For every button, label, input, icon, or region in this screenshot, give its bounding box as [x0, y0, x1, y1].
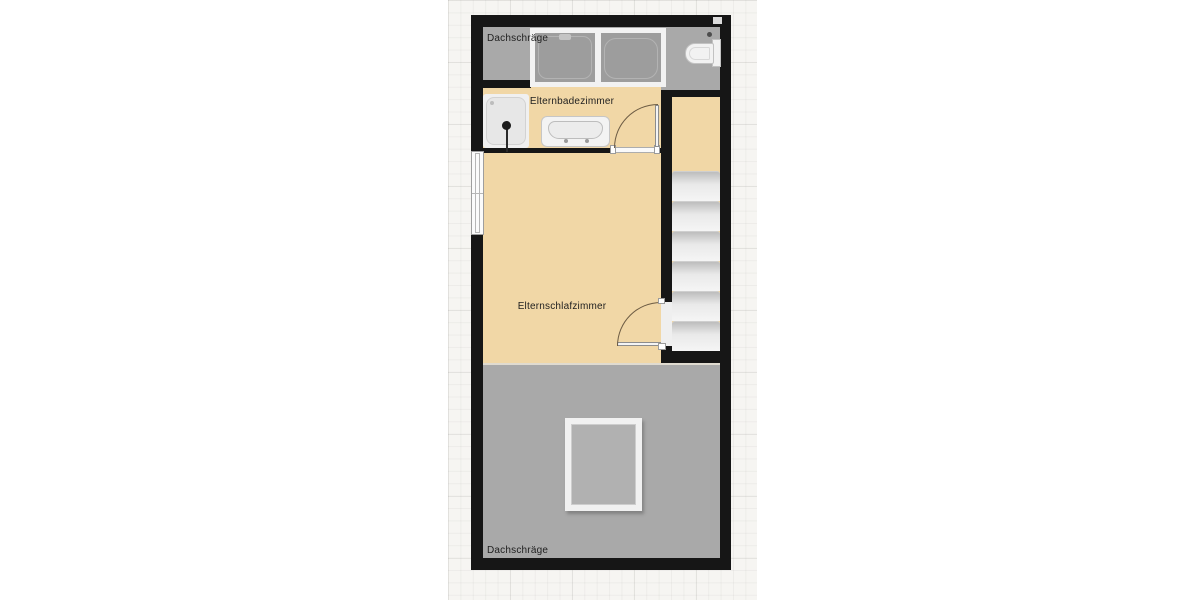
stair-tread [672, 261, 720, 291]
floor-plan: Dachschräge Elternbadezimmer Elternschla… [471, 15, 731, 570]
bathtub[interactable] [530, 28, 666, 87]
window-mullion [472, 193, 483, 194]
stair-tread [672, 201, 720, 231]
bathtub-basin-right [601, 33, 661, 82]
wall-stairwell-bottom [661, 351, 720, 363]
stair-tread [672, 171, 720, 201]
stair-tread [672, 321, 720, 351]
room-label-bedroom: Elternschlafzimmer [483, 301, 641, 313]
shower-head-icon [502, 121, 511, 130]
room-label-bathroom: Elternbadezimmer [483, 96, 661, 108]
wall-vent-icon [713, 17, 722, 24]
wall-bathroom-bedroom [483, 148, 610, 153]
roof-window-pane [571, 424, 636, 505]
wall-bathroom-top-left [471, 80, 531, 88]
wall-stairwell-top [661, 90, 720, 97]
toilet[interactable] [685, 43, 714, 64]
door-jamb [658, 298, 665, 304]
stair-tread [672, 231, 720, 261]
faucet-icon [559, 34, 571, 40]
bathtub-basin-outline [604, 38, 658, 79]
door-jamb [658, 343, 666, 350]
window[interactable] [471, 151, 484, 235]
stairs[interactable] [672, 97, 720, 351]
zone-label-bottom: Dachschräge [487, 545, 548, 557]
sink-tap-icon [585, 139, 589, 143]
sink-tap-icon [564, 139, 568, 143]
zone-label-top: Dachschräge [487, 33, 548, 45]
toilet-bowl-outline [689, 47, 710, 60]
stair-tread [672, 291, 720, 321]
wall-stairwell-side [661, 97, 672, 302]
sink-basin-outline [548, 121, 603, 139]
roof-window[interactable] [565, 418, 642, 511]
valve-dot-icon [707, 32, 712, 37]
stairwell-door-opening [661, 302, 672, 346]
sink[interactable] [541, 116, 610, 147]
